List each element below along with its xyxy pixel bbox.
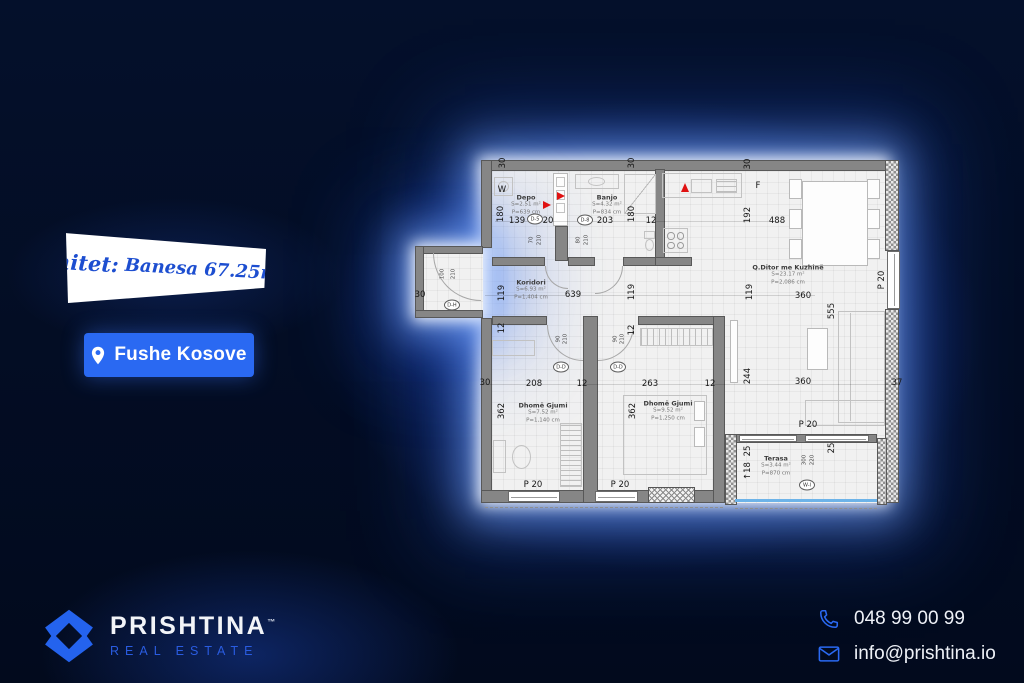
brand-tagline: REAL ESTATE [110,644,275,658]
phone-icon [818,608,840,630]
wall-right-upper [885,160,899,251]
wall-bottom-crosshatch [648,487,695,503]
bathroom-sink [588,177,605,186]
wall-terrace-right [877,438,887,505]
terrace-dashed-line [735,508,877,509]
dining-chair [789,239,802,259]
door-marker: D-5 [527,214,543,225]
dimension-label: 119 [628,284,637,300]
pillow [694,427,705,447]
dimension-label: 192 [744,207,753,223]
room-measure: S=2.51 m² [511,202,541,209]
wall-top [481,160,887,171]
room-label: Q.Ditor me KuzhinëS=23.17 m²P=2,086 cm [752,264,823,287]
dish-rack [716,179,737,193]
window-terrace-a [739,435,797,442]
email-row[interactable]: info@prishtina.io [818,643,996,665]
dimension-label: 20 [543,217,554,226]
dimension-label: 90 [556,336,562,343]
tv-unit [730,320,738,383]
dimension-label: F [756,182,761,191]
wall-shaft-lower [555,226,568,261]
entry-arrow-icon [543,201,551,209]
dimension-label: 25 [828,443,837,454]
balcony-rail [735,499,877,502]
location-pin-icon [91,346,105,365]
dimension-label: 244 [744,368,753,384]
toilet [644,231,655,239]
dimension-label: 488 [769,217,785,226]
dimension-label: 210 [620,334,626,345]
dimension-label: 90 [613,336,619,343]
coffee-table [807,328,828,370]
door-marker: D-H [444,300,460,311]
brand-logo-text: PRISHTINA™ REAL ESTATE [110,614,275,658]
trademark-symbol: ™ [267,618,275,627]
dimension-label: 210 [537,235,543,246]
room-label: KoridoriS=6.93 m²P=1,404 cm [514,279,548,302]
entry-arrow-icon [557,192,565,200]
location-label: Fushe Kosove [114,344,246,366]
dimension-label: 12 [705,380,716,389]
dimension-label: P 20 [799,421,818,430]
window-bedroom-1 [508,491,560,502]
wall-toprooms-a [492,257,545,266]
dimension-label: 30 [480,379,491,388]
duct-box-3 [556,203,565,213]
kitchen-sink [691,179,712,193]
room-measure: S=6.93 m² [514,287,548,294]
room-measure: S=4.32 m² [592,202,622,209]
room-measure: P=2,086 cm [752,279,823,286]
dining-chair [867,179,880,199]
door-marker: D-8 [577,215,593,226]
brand-logo: PRISHTINA™ REAL ESTATE [42,605,275,667]
dimension-label: 12 [498,323,507,334]
dimension-label: P 20 [524,481,543,490]
dimension-label: 100 [440,269,446,280]
dining-chair [867,209,880,229]
dimension-label: 210 [451,269,457,280]
stove [663,228,688,253]
wall-kitchen-stub [655,257,692,266]
dimension-label: P 20 [878,271,887,290]
sale-banner: Shitet: Banesa 67.25m2 [66,231,266,303]
room-measure: P=1,250 cm [643,415,692,422]
dimension-label: 37 [892,379,903,388]
dimension-label: P 20 [611,481,630,490]
dimension-label: 210 [563,334,569,345]
brand-name: PRISHTINA™ [110,614,275,639]
dimension-label: 119 [498,285,507,301]
dimension-label: 208 [526,380,542,389]
room-label: TerasaS=3.44 m²P=870 cm [761,455,791,478]
entry-arrow-icon [681,183,689,192]
wall-vestibule-bottom [415,310,483,318]
sale-banner-text: Shitet: Banesa 67.25m2 [64,225,268,308]
bedroom1-wardrobe [560,423,582,487]
dimension-label: 139 [509,217,525,226]
dimension-label: 555 [828,303,837,319]
room-measure: S=9.52 m² [643,408,692,415]
room-label: Dhomë GjumiS=9.52 m²P=1,250 cm [643,400,692,423]
email-icon [818,645,840,663]
wall-bedroom-divider [583,316,598,503]
room-measure: S=23.17 m² [752,272,823,279]
wall-left-upper [481,160,492,248]
window-terrace-b [805,435,869,442]
wall-corridor-b [638,316,723,325]
dimension-label: 210 [584,235,590,246]
wall-toprooms-b [568,257,595,266]
wall-vestibule-left [415,246,424,318]
contact-block: 048 99 00 99 info@prishtina.io [818,608,996,678]
dimension-label: 180 [628,206,637,222]
toilet-bowl [645,239,654,251]
dimension-label: 25 [744,446,753,457]
dimension-label: 12 [577,380,588,389]
poster: { "banner": { "script": "Shitet:", "rest… [0,0,1024,683]
dimension-label: 180 [497,206,506,222]
dimension-label: 639 [565,291,581,300]
wall-left-lower [481,318,492,503]
wall-terrace-left [725,434,737,505]
duct-box-1 [556,177,565,187]
room-label: Dhomë GjumiS=7.52 m²P=1,140 cm [518,402,567,425]
dimension-label: 360 [795,378,811,387]
facade-dashed-line [485,507,723,508]
wall-right-lower [885,309,899,503]
desk-chair [512,445,531,469]
dimension-label: 203 [597,217,613,226]
room-measure: P=870 cm [761,470,791,477]
room-measure: S=7.52 m² [518,410,567,417]
dimension-label: 263 [642,380,658,389]
phone-number: 048 99 00 99 [854,608,965,630]
banner-apartment-size: Banesa 67.25m2 [124,254,292,284]
window-bedroom-2 [595,491,638,502]
dimension-label: 300 [802,455,808,466]
dimension-label: 220 [810,455,816,466]
dimension-label: 362 [498,403,507,419]
bedroom1-closet [492,340,535,356]
dimension-line [481,384,897,385]
door-marker: W-I [799,480,815,491]
location-button[interactable]: Fushe Kosove [84,333,254,377]
dimension-label: 30 [744,159,753,170]
desk [493,440,506,473]
floor-plan: DepoS=2.51 m²P=639 cmBanjoS=4.32 m²P=834… [405,143,905,515]
pillow [694,401,705,421]
window-living-right [887,251,900,309]
bedroom2-wardrobe [640,328,713,346]
dimension-label: 30 [628,158,637,169]
email-address: info@prishtina.io [854,643,996,665]
wall-living-left [713,316,725,503]
dining-chair [867,239,880,259]
dimension-label: 30 [499,158,508,169]
prishtina-gem-icon [42,605,96,667]
dimension-label: 12 [646,217,657,226]
dimension-label: 360 [795,292,811,301]
door-marker: D-D [610,362,626,373]
dimension-label: 30 [415,291,426,300]
room-label: BanjoS=4.32 m²P=834 cm [592,194,622,217]
dimension-label: 70 [529,237,535,244]
dimension-label: 80 [576,237,582,244]
dimension-label: W [498,186,506,195]
dimension-label: 362 [629,403,638,419]
room-measure: P=1,140 cm [518,417,567,424]
banner-script-word: Shitet: [39,247,119,276]
room-measure: P=1,404 cm [514,294,548,301]
room-measure: S=3.44 m² [761,463,791,470]
dimension-label: ↑18 [744,462,753,480]
door-marker: D-D [553,362,569,373]
dining-table [802,181,868,266]
dimension-label: 119 [746,284,755,300]
dining-chair [789,179,802,199]
dimension-label: 12 [628,325,637,336]
phone-row[interactable]: 048 99 00 99 [818,608,996,630]
dining-chair [789,209,802,229]
